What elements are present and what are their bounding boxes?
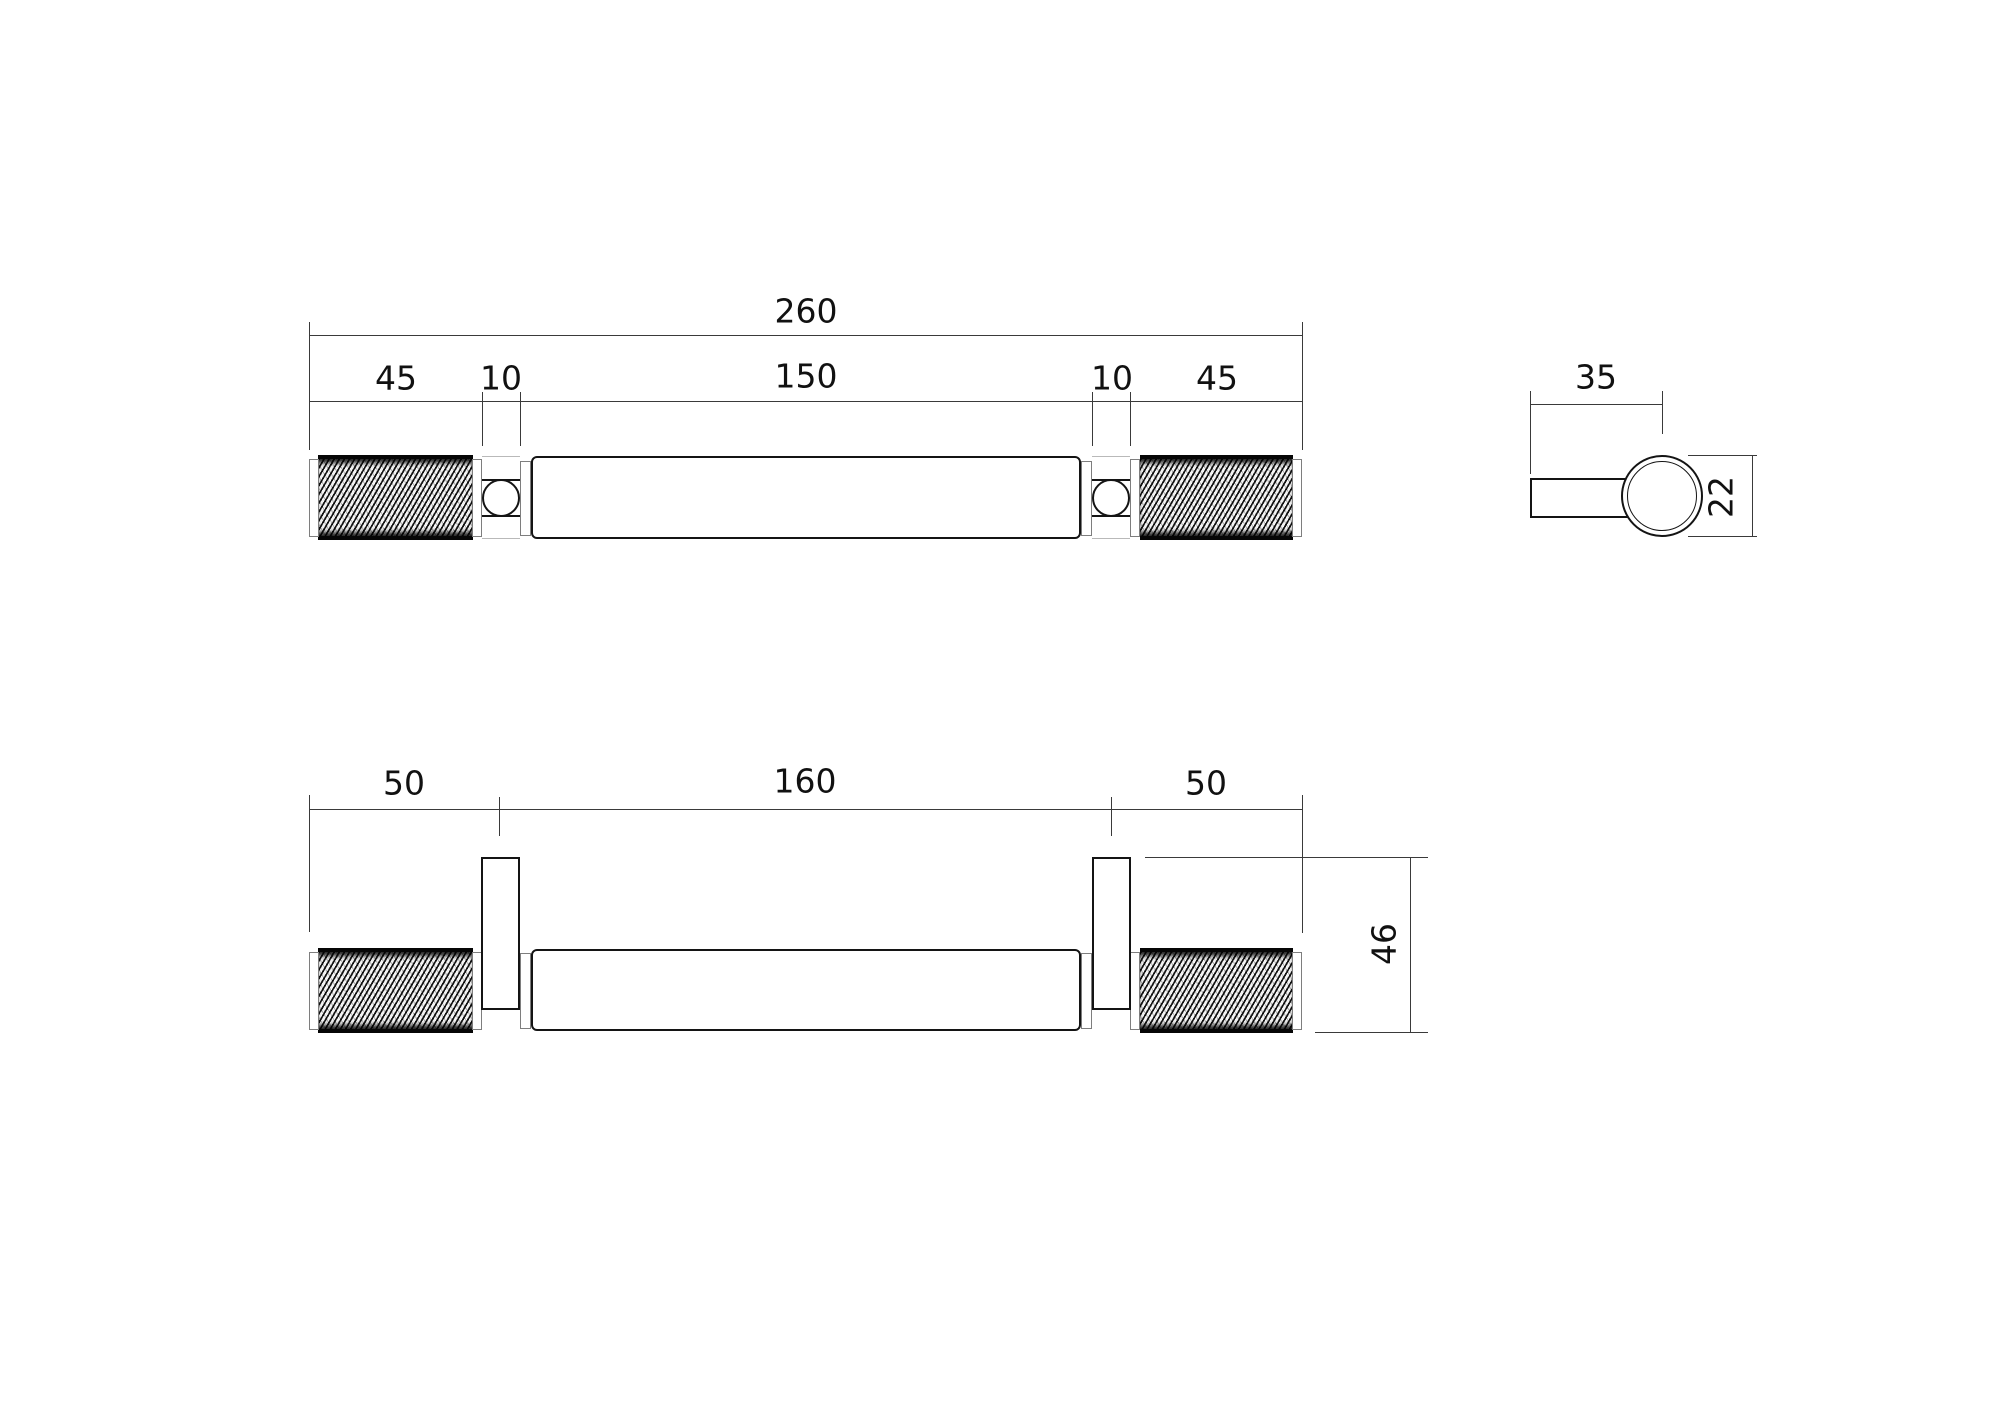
plan-ext-tick-3 bbox=[1092, 392, 1093, 446]
plan-stem-circle-right bbox=[1092, 479, 1130, 517]
plan-dim-label-seg5: 45 bbox=[1196, 362, 1238, 395]
front-dim-line-height bbox=[1410, 857, 1411, 1032]
end-dim-label-projection: 35 bbox=[1575, 361, 1617, 394]
end-dim-line-projection bbox=[1530, 404, 1662, 405]
front-dim-label-seg1: 50 bbox=[383, 767, 425, 800]
front-ext-tick-2 bbox=[1111, 797, 1112, 836]
front-bar-cap-left bbox=[520, 953, 531, 1029]
plan-knurl-right bbox=[1140, 455, 1293, 540]
front-knurl-right bbox=[1140, 948, 1293, 1033]
plan-knurl-right-cap-outer bbox=[1292, 459, 1302, 537]
plan-knurl-left-cap-inner bbox=[472, 459, 482, 537]
plan-knurl-right-cap-inner bbox=[1130, 459, 1140, 537]
front-knurl-left-cap-outer bbox=[309, 952, 319, 1030]
front-bar-cap-right bbox=[1081, 953, 1092, 1029]
plan-gap-silhouette bbox=[1092, 538, 1130, 539]
front-dim-label-seg2: 160 bbox=[774, 765, 837, 798]
end-dim-line-diameter bbox=[1752, 455, 1753, 537]
front-ext-right bbox=[1302, 795, 1303, 933]
plan-stem-circle-left bbox=[482, 479, 520, 517]
front-knurl-right-cap-inner bbox=[1130, 952, 1140, 1030]
front-ext-tick-1 bbox=[499, 797, 500, 836]
end-circle-inner bbox=[1627, 461, 1697, 531]
plan-dim-label-seg3: 150 bbox=[775, 360, 838, 393]
plan-dim-label-overall: 260 bbox=[775, 295, 838, 328]
plan-dim-label-seg2: 10 bbox=[480, 362, 522, 395]
front-dim-label-height: 46 bbox=[1368, 923, 1401, 965]
plan-bar-body bbox=[531, 456, 1081, 539]
plan-gap-silhouette bbox=[1092, 456, 1130, 457]
front-dim-line-chain bbox=[309, 809, 1302, 810]
plan-knurl-left bbox=[318, 455, 473, 540]
plan-bar-cap-left bbox=[520, 461, 531, 536]
drawing-canvas: 260 45 10 150 10 45 bbox=[0, 0, 1999, 1414]
plan-dim-label-seg4: 10 bbox=[1091, 362, 1133, 395]
plan-dim-line-overall bbox=[309, 335, 1302, 336]
end-dim-label-diameter: 22 bbox=[1705, 476, 1738, 518]
plan-bar-cap-right bbox=[1081, 461, 1092, 536]
plan-ext-tick-4 bbox=[1130, 392, 1131, 446]
front-stem-left bbox=[481, 857, 520, 1010]
front-bar-body bbox=[531, 949, 1081, 1031]
end-ext-diameter-top bbox=[1688, 455, 1757, 456]
plan-ext-tick-1 bbox=[482, 392, 483, 446]
plan-ext-left bbox=[309, 322, 310, 450]
front-stem-right bbox=[1092, 857, 1131, 1010]
end-ext-left bbox=[1530, 391, 1531, 474]
end-ext-diameter-bottom bbox=[1688, 536, 1757, 537]
plan-gap-silhouette bbox=[482, 538, 520, 539]
plan-gap-silhouette bbox=[482, 456, 520, 457]
front-ext-height-bottom bbox=[1315, 1032, 1428, 1033]
front-ext-height-top bbox=[1145, 857, 1428, 858]
plan-knurl-left-cap-outer bbox=[309, 459, 319, 537]
plan-ext-right bbox=[1302, 322, 1303, 450]
plan-dim-label-seg1: 45 bbox=[375, 362, 417, 395]
front-dim-label-seg3: 50 bbox=[1185, 767, 1227, 800]
front-knurl-right-cap-outer bbox=[1292, 952, 1302, 1030]
end-ext-right bbox=[1662, 391, 1663, 434]
front-ext-left bbox=[309, 795, 310, 932]
plan-ext-tick-2 bbox=[520, 392, 521, 446]
plan-dim-line-chain bbox=[309, 401, 1302, 402]
front-knurl-left bbox=[318, 948, 473, 1033]
